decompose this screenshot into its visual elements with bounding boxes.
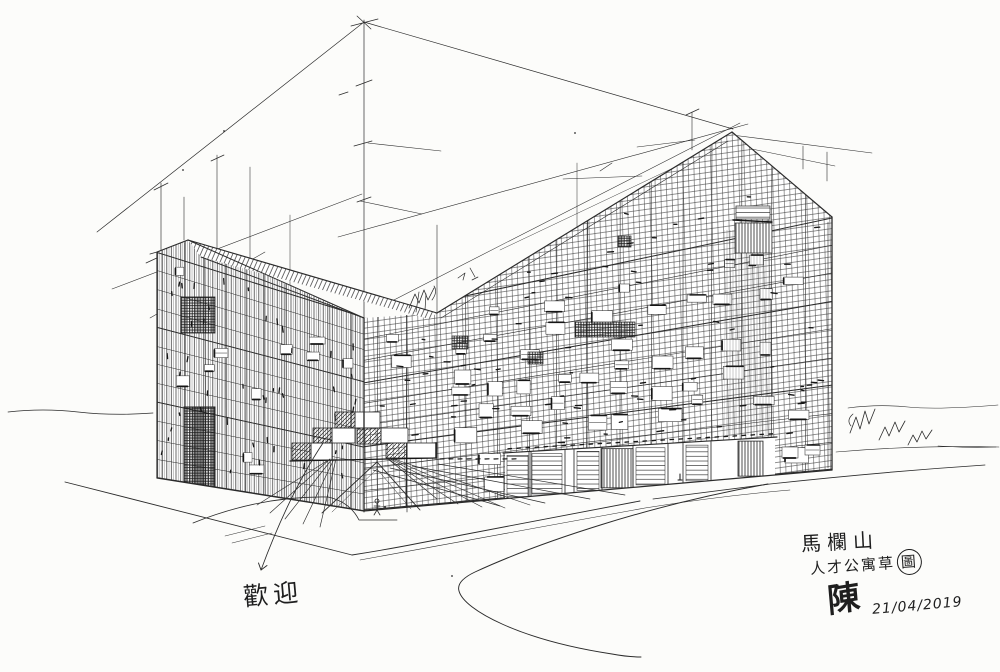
entrance-label: 歡迎: [242, 572, 305, 613]
circled-character: 圖: [896, 548, 923, 576]
artist-signature: 陳: [825, 569, 862, 622]
sketch-page: 歡迎 馬欄山 人才公寓草圖 陳 21/04/2019: [0, 0, 1000, 672]
entrance-label-text: 歡迎: [242, 577, 304, 611]
left-building-facade: [150, 235, 370, 520]
